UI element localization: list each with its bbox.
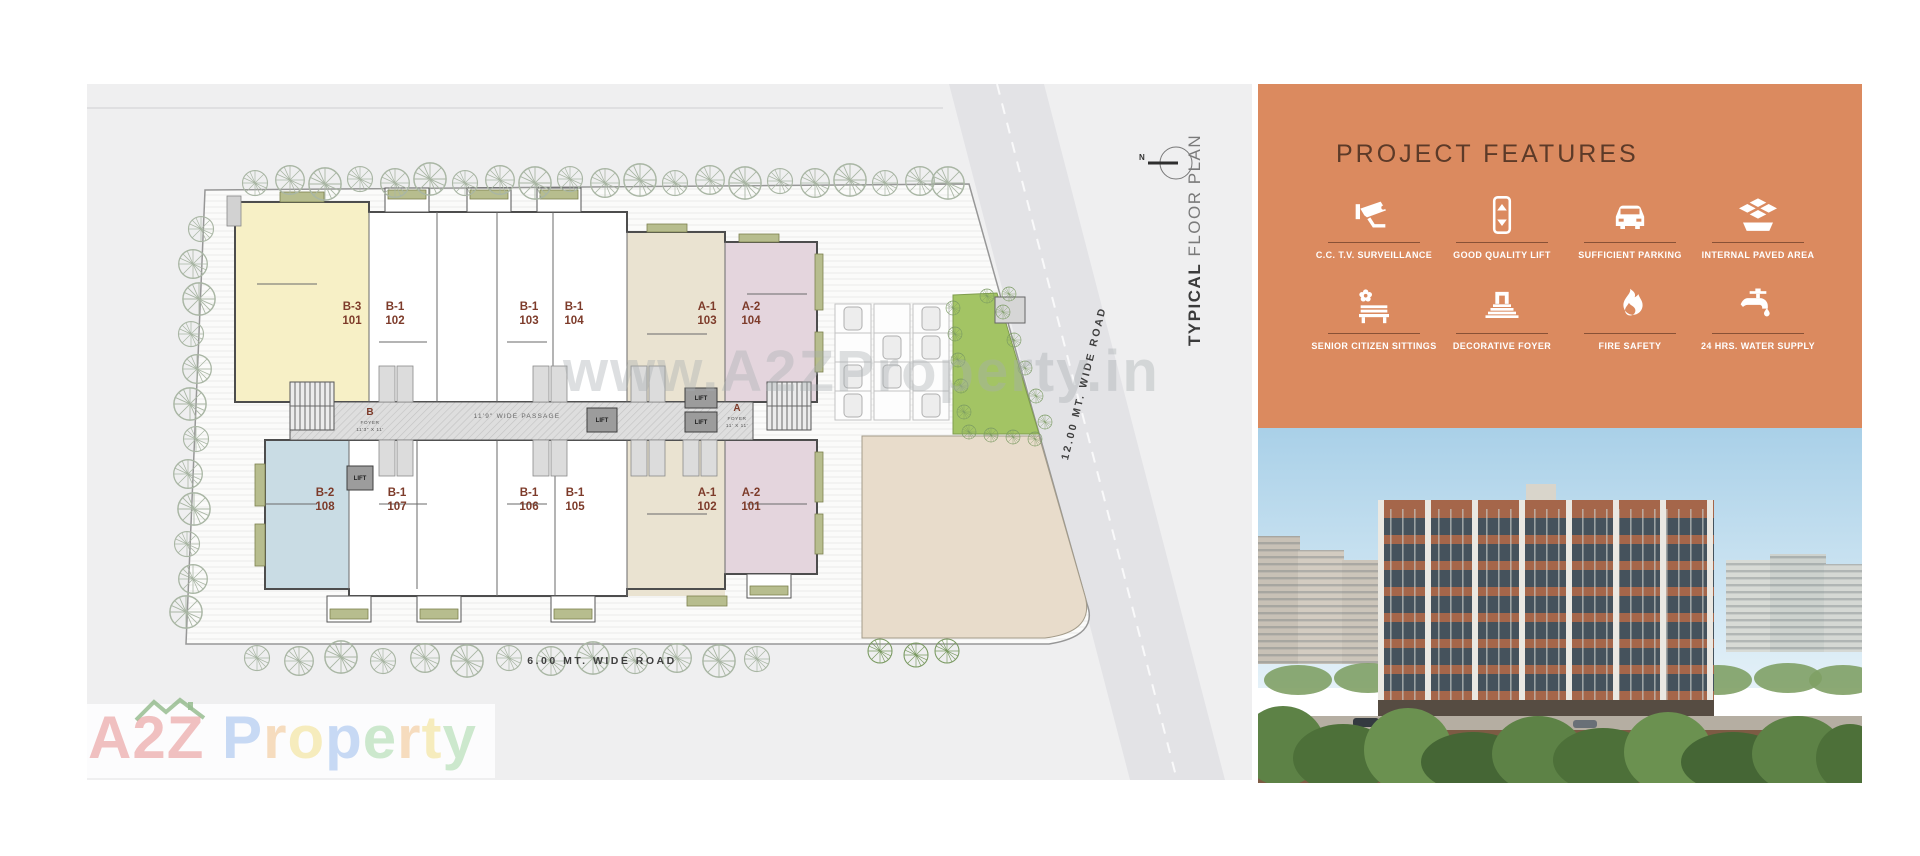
logo-letter (204, 704, 222, 771)
parking-stall (874, 304, 910, 333)
tree-icon (948, 327, 962, 341)
tree-icon (1028, 432, 1042, 446)
unit-area-A2-104 (725, 242, 817, 402)
tree-icon (381, 169, 410, 198)
parking-stall (913, 362, 949, 391)
vestibule (631, 440, 647, 476)
tree-icon (486, 166, 515, 195)
feature-lift: GOOD QUALITY LIFT (1438, 193, 1566, 260)
tree-icon (184, 427, 209, 452)
feature-sittings: SENIOR CITIZEN SITTINGS (1310, 284, 1438, 351)
staircase-b (290, 382, 334, 430)
svg-text:LIFT: LIFT (695, 420, 708, 426)
svg-text:LIFT: LIFT (695, 396, 708, 402)
tree-icon (904, 643, 928, 667)
unit-area-B2-108 (265, 440, 349, 589)
tree-icon (954, 379, 968, 393)
tree-icon (179, 565, 208, 594)
svg-text:11' X 11': 11' X 11' (726, 423, 748, 429)
tree-icon (868, 639, 892, 663)
tree-icon (745, 647, 770, 672)
logo-letter: 2 (132, 704, 166, 771)
parked-car (922, 307, 940, 330)
features-title: PROJECT FEATURES (1336, 140, 1862, 169)
site-plan-drawing: LIFT LIFT LIFT LIFT B FOYER 11'3" X 11' … (87, 84, 1252, 780)
lift-a-2: LIFT (685, 412, 717, 432)
vestibule (533, 440, 549, 476)
tree-icon (935, 639, 959, 663)
feature-water: 24 HRS. WATER SUPPLY (1694, 284, 1822, 351)
tree-icon (591, 169, 620, 198)
tap-icon (1737, 284, 1779, 326)
tree-icon (696, 166, 725, 195)
vestibule (551, 440, 567, 476)
vestibule (649, 440, 665, 476)
feature-divider (1328, 333, 1420, 334)
tree-icon (497, 646, 522, 671)
tree-icon (663, 171, 688, 196)
brochure-page: { "plan": { "title_bold": "TYPICAL", "ti… (0, 0, 1920, 856)
tree-icon (984, 428, 998, 442)
vestibule (683, 440, 699, 476)
tree-icon (325, 641, 357, 673)
svg-text:FOYER: FOYER (360, 420, 379, 426)
feature-cctv: C.C. T.V. SURVEILLANCE (1310, 193, 1438, 260)
parked-car (883, 365, 901, 388)
tree-icon (624, 164, 656, 196)
road-bottom-label: 6.00 MT. WIDE ROAD (527, 655, 676, 667)
tree-icon (309, 168, 341, 200)
apartment-building (1378, 484, 1714, 717)
tree-icon (179, 322, 204, 347)
vestibule (397, 440, 413, 476)
feature-divider (1584, 333, 1676, 334)
logo-letter: e (363, 704, 397, 771)
vestibule (533, 366, 549, 402)
svg-text:FOYER: FOYER (727, 416, 746, 422)
tree-icon (1006, 430, 1020, 444)
tree-icon (414, 163, 446, 195)
tree-icon (1038, 415, 1052, 429)
feature-divider (1712, 242, 1804, 243)
tree-icon (411, 644, 440, 673)
tree-icon (996, 305, 1010, 319)
parked-car (922, 394, 940, 417)
feature-divider (1456, 242, 1548, 243)
parked-car (844, 307, 862, 330)
logo-letter: Z (167, 704, 205, 771)
tree-icon (174, 388, 206, 420)
paving-icon (1736, 193, 1780, 235)
building-photo (1258, 428, 1862, 783)
cctv-icon (1354, 193, 1394, 235)
parked-car (883, 336, 901, 359)
vestibule (701, 440, 717, 476)
watermark-logo: A2Z Property (78, 704, 495, 778)
logo-letter: r (263, 704, 287, 771)
parking-stall (874, 391, 910, 420)
tree-icon (1018, 361, 1032, 375)
vestibule (631, 366, 647, 402)
tree-icon (174, 460, 203, 489)
tree-icon (957, 405, 971, 419)
tree-icon (285, 647, 314, 676)
passage-label: 11'9" WIDE PASSAGE (474, 413, 561, 420)
tree-icon (729, 167, 761, 199)
tree-icon (276, 166, 305, 195)
car-icon (1608, 193, 1652, 235)
tree-icon (1029, 389, 1043, 403)
tree-icon (183, 283, 215, 315)
logo-letter: o (287, 704, 325, 771)
feature-divider (1328, 242, 1420, 243)
tree-icon (768, 169, 793, 194)
tree-icon (932, 167, 964, 199)
vestibule (397, 366, 413, 402)
tree-icon (834, 164, 866, 196)
parked-car (922, 336, 940, 359)
logo-letter: y (442, 704, 476, 771)
svg-text:11'3" X 11': 11'3" X 11' (356, 427, 384, 433)
svg-text:LIFT: LIFT (596, 418, 609, 424)
lift-icon (1485, 193, 1519, 235)
passage (290, 402, 753, 440)
building-footprint: LIFT LIFT LIFT LIFT B FOYER 11'3" X 11' … (227, 188, 823, 622)
tree-icon (451, 645, 483, 677)
vestibule (649, 366, 665, 402)
features-panel: PROJECT FEATURES C.C. T.V. SURVEILLANCE … (1258, 84, 1862, 428)
parked-car (844, 365, 862, 388)
feature-parking: SUFFICIENT PARKING (1566, 193, 1694, 260)
vestibule (379, 440, 395, 476)
staircase-a (767, 382, 811, 430)
tree-icon (558, 167, 583, 192)
plan-title: TYPICAL FLOOR PLAN (1185, 134, 1204, 346)
tree-icon (873, 171, 898, 196)
tree-icon (703, 645, 735, 677)
tree-icon (245, 646, 270, 671)
foyer-icon (1481, 284, 1523, 326)
logo-letter: r (397, 704, 421, 771)
unit-area-A2-101 (725, 440, 817, 574)
parked-car (844, 394, 862, 417)
north-label: N (1139, 153, 1145, 162)
feature-fire: FIRE SAFETY (1566, 284, 1694, 351)
lift-b: LIFT (347, 466, 373, 490)
lift-a-1: LIFT (685, 388, 717, 408)
tree-icon (189, 217, 214, 242)
tree-icon (170, 596, 202, 628)
tree-icon (801, 169, 830, 198)
feature-divider (1584, 242, 1676, 243)
tree-icon (906, 167, 935, 196)
parking-area (835, 304, 949, 420)
tree-icon (183, 355, 212, 384)
svg-text:B: B (366, 407, 373, 418)
parking-stall (835, 333, 871, 362)
lift-passage: LIFT (587, 408, 617, 432)
tree (1264, 665, 1332, 695)
svg-text:A: A (733, 403, 740, 414)
svg-text:LIFT: LIFT (354, 476, 367, 482)
feature-divider (1712, 333, 1804, 334)
tree-icon (962, 425, 976, 439)
tree-icon (348, 167, 373, 192)
tree-icon (178, 493, 210, 525)
logo-letter: t (421, 704, 442, 771)
tree-icon (371, 649, 396, 674)
logo-letter: P (222, 704, 263, 771)
tree-icon (980, 289, 994, 303)
feature-foyer: DECORATIVE FOYER (1438, 284, 1566, 351)
tree-icon (1002, 287, 1016, 301)
feature-divider (1456, 333, 1548, 334)
tree-icon (951, 353, 965, 367)
logo-letter: p (325, 704, 363, 771)
tree-icon (519, 167, 551, 199)
floor-plan-panel: LIFT LIFT LIFT LIFT B FOYER 11'3" X 11' … (87, 84, 1252, 780)
tree-icon (179, 250, 208, 279)
tree-icon (946, 301, 960, 315)
car (1573, 720, 1597, 728)
tree-icon (453, 171, 478, 196)
logo-letter: A (88, 704, 132, 771)
vestibule (551, 366, 567, 402)
tree-icon (243, 171, 268, 196)
feature-paved: INTERNAL PAVED AREA (1694, 193, 1822, 260)
tree-icon (1007, 333, 1021, 347)
vestibule (379, 366, 395, 402)
tree-icon (175, 532, 200, 557)
flame-icon (1612, 284, 1648, 326)
bench-icon (1353, 284, 1395, 326)
features-grid: C.C. T.V. SURVEILLANCE GOOD QUALITY LIFT… (1258, 193, 1862, 351)
